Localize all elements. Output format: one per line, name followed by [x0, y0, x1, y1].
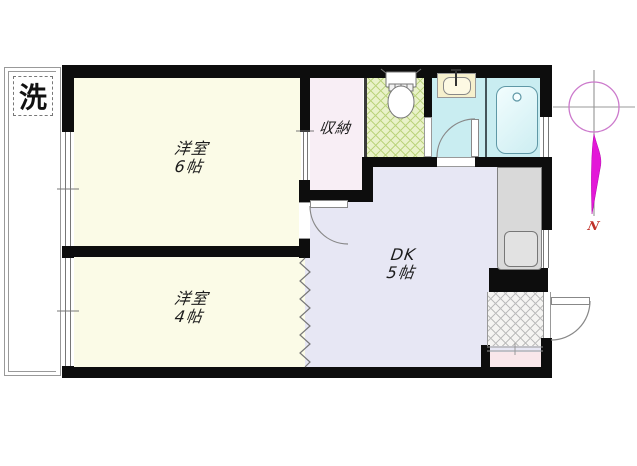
wall-sanitary-left	[362, 157, 437, 167]
compass	[553, 70, 635, 216]
washbasin-bowl	[443, 77, 471, 95]
wall-entrance-block	[489, 268, 548, 292]
compass-circle	[569, 82, 619, 132]
bathtub	[496, 86, 538, 154]
room-size: 6帖	[147, 158, 230, 176]
room-size: 4帖	[147, 308, 230, 326]
entrance-genkan-floor	[487, 292, 543, 346]
entrance-doorway	[543, 292, 551, 338]
laundry-machine-box: 洗	[13, 76, 53, 116]
toilet-door	[424, 117, 432, 157]
wall-bottom	[62, 367, 548, 378]
wall-left-upper	[62, 65, 74, 132]
wall-sanitary-right	[475, 157, 541, 167]
laundry-label: 洗	[19, 76, 47, 116]
floor-plan: 洗	[0, 0, 637, 466]
compass-north-arrow	[591, 134, 601, 214]
wall-room-divider	[62, 246, 310, 257]
window-left-room4	[62, 258, 74, 366]
north-label-text: N	[584, 217, 604, 235]
room-size: 5帖	[359, 264, 442, 282]
entrance-door-leaf	[551, 297, 590, 305]
room-name: 洋室	[150, 140, 233, 158]
window-right-bath	[540, 117, 552, 157]
balcony-rail-line	[8, 71, 56, 372]
entrance-door-arc	[551, 301, 590, 340]
toilet-floor	[364, 78, 424, 157]
room-name: 洋室	[150, 290, 233, 308]
dk-door-leaf	[310, 200, 348, 208]
closet-label-text: 収納	[302, 119, 369, 137]
dk-doorway	[299, 202, 310, 239]
wall-doorstub-top	[299, 180, 310, 202]
washroom-door-leaf	[471, 119, 479, 157]
room-label-western-6: 洋室 6帖	[147, 140, 232, 176]
window-left-room6	[62, 132, 74, 246]
room-label-dk: DK 5帖	[359, 246, 444, 282]
room-label-western-4: 洋室 4帖	[147, 290, 232, 326]
entrance-step-floor	[487, 352, 543, 367]
closet-label: 収納	[302, 119, 369, 137]
wall-toilet-divider	[424, 78, 432, 117]
kitchen-sink-basin	[504, 231, 538, 267]
room-name: DK	[362, 246, 445, 264]
closet-sliding-door	[301, 132, 310, 180]
wall-right-bottom	[541, 338, 552, 378]
washroom-door-threshold	[437, 157, 475, 167]
wall-right-bath	[540, 78, 552, 117]
north-label: N	[584, 217, 604, 235]
wall-entrance-stub	[481, 345, 490, 368]
